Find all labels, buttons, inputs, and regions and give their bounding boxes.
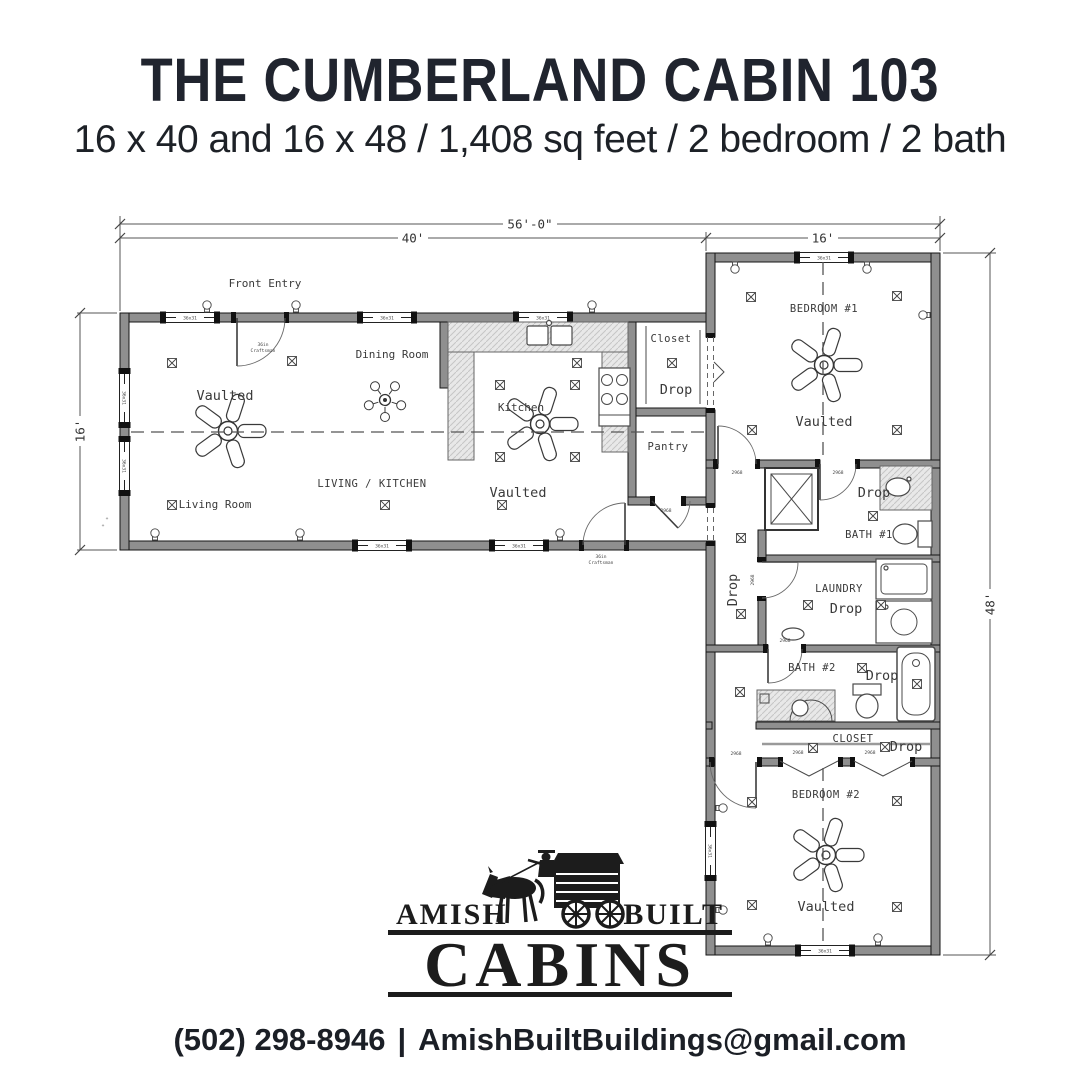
bifold-door xyxy=(854,761,912,776)
label-front-entry: Front Entry xyxy=(229,277,302,290)
label-dining-room: Dining Room xyxy=(356,348,429,361)
bifold-door xyxy=(780,761,838,776)
ridge-lines xyxy=(131,262,823,944)
ceiling-fan xyxy=(789,327,862,403)
page-subtitle: 16 x 40 and 16 x 48 / 1,408 sq feet / 2 … xyxy=(0,119,1080,162)
label-drop: Drop xyxy=(660,382,693,398)
label-bedroom1: BEDROOM #1 xyxy=(790,303,858,315)
label-living-room: Living Room xyxy=(179,498,252,511)
svg-text:36in: 36in xyxy=(595,554,606,560)
svg-text:Craftsman: Craftsman xyxy=(589,560,614,566)
doors xyxy=(237,318,912,808)
svg-text:2968: 2968 xyxy=(792,750,803,756)
header: THE CUMBERLAND CABIN 103 16 x 40 and 16 … xyxy=(0,50,1080,162)
page-title: THE CUMBERLAND CABIN 103 xyxy=(76,50,1005,111)
dining-light-fixture xyxy=(363,380,407,422)
label-vaulted: Vaulted xyxy=(197,388,254,404)
svg-text:+: + xyxy=(106,517,109,522)
label-bath2: BATH #2 xyxy=(788,662,836,674)
logo-amish: AMISH xyxy=(396,898,508,931)
label-bedroom2: BEDROOM #2 xyxy=(792,789,860,801)
ceiling-fan xyxy=(791,817,864,893)
svg-text:Craftsman: Craftsman xyxy=(251,348,276,354)
dim-right-wing-height: 48' xyxy=(983,593,998,616)
label-drop: Drop xyxy=(890,739,923,755)
dim-left-wing-width: 40' xyxy=(402,231,425,246)
dim-right-wing-width: 16' xyxy=(812,231,835,246)
label-vaulted: Vaulted xyxy=(798,899,855,915)
svg-text:2968: 2968 xyxy=(660,508,671,514)
svg-text:2968: 2968 xyxy=(750,574,756,585)
label-drop: Drop xyxy=(866,668,899,684)
amish-built-cabins-logo: AMISH BUILT xyxy=(388,846,732,1002)
attic-access-arrow xyxy=(714,362,724,382)
ceiling-fan xyxy=(505,386,578,462)
bath2-toilet xyxy=(853,684,881,695)
footer-divider: | xyxy=(385,1022,418,1057)
label-drop: Drop xyxy=(858,485,891,501)
label-closet: Closet xyxy=(651,333,692,345)
svg-text:2968: 2968 xyxy=(864,750,875,756)
phone-number: (502) 298-8946 xyxy=(173,1022,385,1057)
ceiling-fan xyxy=(193,393,266,469)
label-drop: Drop xyxy=(830,601,863,617)
label-pantry: Pantry xyxy=(648,441,689,453)
logo-divider-bottom xyxy=(388,992,732,997)
svg-text:36in: 36in xyxy=(257,342,268,348)
logo-built: BUILT xyxy=(623,898,724,931)
label-vaulted: Vaulted xyxy=(796,414,853,430)
svg-text:2968: 2968 xyxy=(731,470,742,476)
logo-cabins: CABINS xyxy=(424,929,696,1000)
label-laundry: LAUNDRY xyxy=(815,583,863,595)
label-drop: Drop xyxy=(725,574,741,607)
svg-text:2968: 2968 xyxy=(832,470,843,476)
stove xyxy=(599,368,630,426)
dim-overall-width: 56'-0" xyxy=(507,217,552,232)
kitchen-sink xyxy=(527,326,548,345)
label-closet2: CLOSET xyxy=(833,733,874,745)
label-kitchen: Kitchen xyxy=(498,401,544,414)
label-vaulted: Vaulted xyxy=(490,485,547,501)
footer-contact: (502) 298-8946|AmishBuiltBuildings@gmail… xyxy=(0,1022,1080,1058)
dim-left-wing-depth: 16' xyxy=(73,420,88,443)
label-living-kitchen: LIVING / KITCHEN xyxy=(317,478,426,490)
bath1-toilet xyxy=(918,521,932,547)
svg-text:2968: 2968 xyxy=(730,751,741,757)
label-bath1: BATH #1 xyxy=(845,529,893,541)
email-address: AmishBuiltBuildings@gmail.com xyxy=(418,1022,906,1057)
washer xyxy=(876,559,932,599)
svg-text:2968: 2968 xyxy=(779,638,790,644)
svg-text:+: + xyxy=(102,524,105,529)
